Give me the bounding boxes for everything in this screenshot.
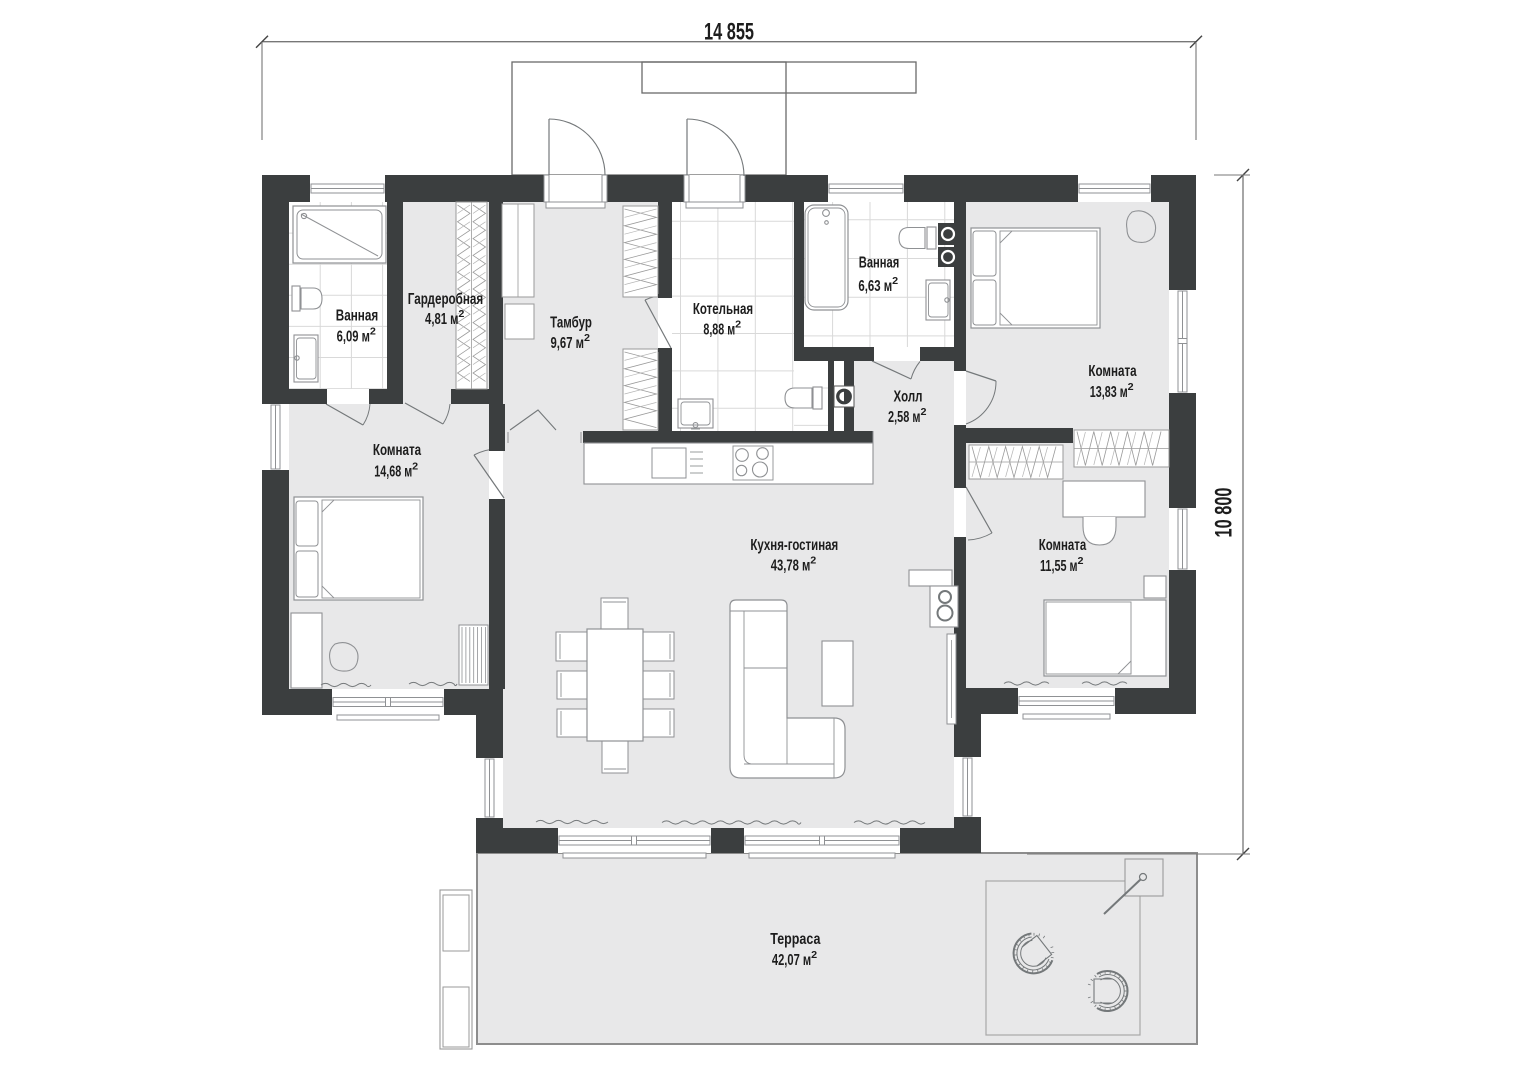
svg-text:Холл: Холл (894, 389, 923, 406)
svg-text:43,78 м: 43,78 м (771, 558, 811, 575)
svg-text:Терраса: Терраса (770, 931, 820, 948)
svg-text:8,88 м: 8,88 м (703, 322, 735, 339)
svg-text:2: 2 (735, 319, 741, 331)
svg-text:2: 2 (1078, 555, 1084, 567)
svg-text:2: 2 (892, 275, 898, 287)
svg-text:9,67 м: 9,67 м (551, 335, 585, 352)
svg-text:2: 2 (584, 332, 590, 344)
svg-text:2,58 м: 2,58 м (888, 409, 920, 426)
svg-text:Гардеробная: Гардеробная (408, 291, 483, 308)
svg-text:Комната: Комната (1088, 363, 1136, 380)
svg-text:2: 2 (370, 326, 376, 338)
svg-text:14 855: 14 855 (704, 19, 754, 46)
svg-text:6,09 м: 6,09 м (337, 329, 370, 346)
svg-text:2: 2 (811, 949, 817, 961)
svg-text:Тамбур: Тамбур (550, 315, 592, 332)
svg-text:Кухня-гостиная: Кухня-гостиная (750, 537, 838, 554)
svg-text:42,07 м: 42,07 м (772, 952, 811, 969)
svg-text:Котельная: Котельная (693, 301, 753, 318)
svg-text:2: 2 (810, 555, 816, 567)
svg-text:10 800: 10 800 (1211, 488, 1238, 538)
svg-text:4,81 м: 4,81 м (425, 311, 458, 328)
svg-text:Ванная: Ванная (859, 255, 900, 272)
svg-text:Ванная: Ванная (336, 308, 378, 325)
svg-text:2: 2 (1128, 381, 1134, 393)
svg-text:11,55 м: 11,55 м (1040, 558, 1078, 575)
svg-text:Комната: Комната (373, 442, 421, 459)
svg-text:14,68 м: 14,68 м (374, 464, 412, 481)
svg-text:2: 2 (412, 461, 418, 473)
svg-text:2: 2 (921, 406, 927, 418)
svg-text:Комната: Комната (1039, 537, 1087, 554)
svg-text:13,83 м: 13,83 м (1090, 384, 1128, 401)
svg-text:2: 2 (458, 308, 464, 320)
svg-text:6,63 м: 6,63 м (858, 278, 892, 295)
